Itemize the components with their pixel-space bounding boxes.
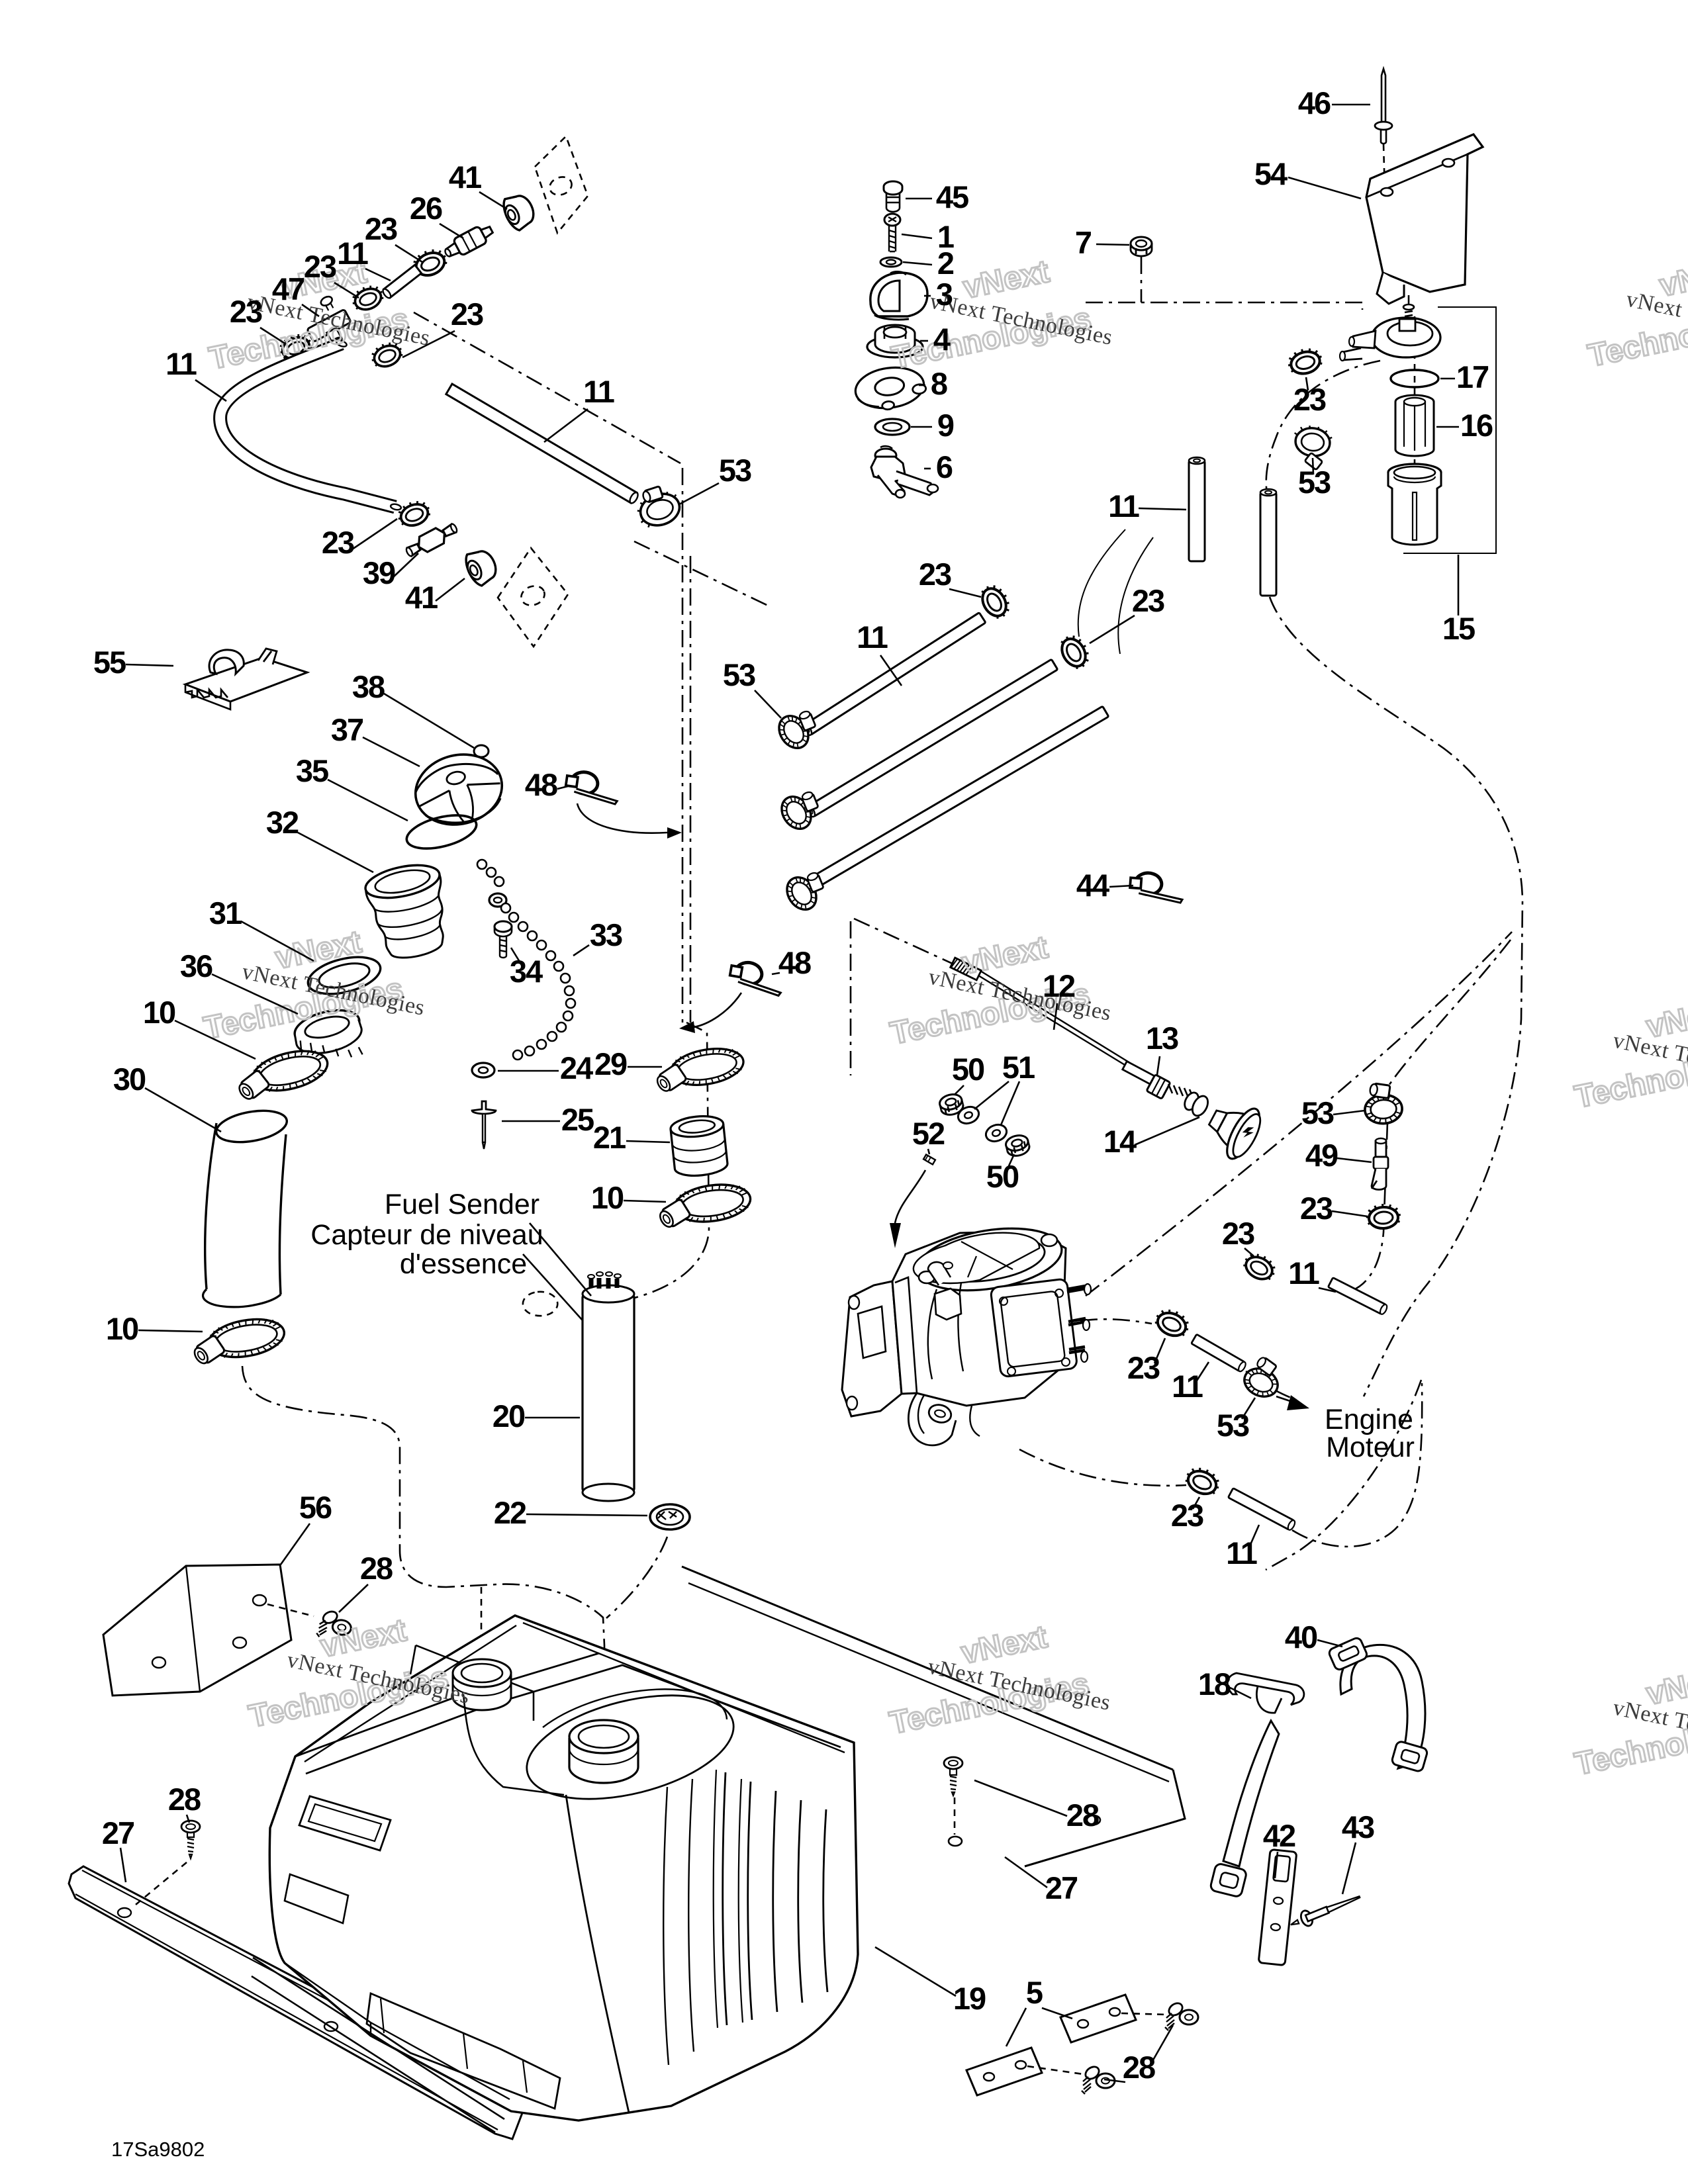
svg-text:37: 37 xyxy=(331,712,363,747)
svg-text:11: 11 xyxy=(165,346,197,381)
svg-text:53: 53 xyxy=(1298,465,1331,500)
svg-text:20: 20 xyxy=(492,1398,525,1433)
svg-text:43: 43 xyxy=(1342,1809,1374,1844)
svg-text:31: 31 xyxy=(209,895,242,931)
svg-text:9: 9 xyxy=(937,408,954,443)
svg-text:11: 11 xyxy=(1108,488,1139,523)
svg-text:Capteur de niveau: Capteur de niveau xyxy=(310,1219,543,1251)
svg-text:23: 23 xyxy=(1293,382,1326,417)
svg-text:23: 23 xyxy=(919,557,951,592)
svg-text:49: 49 xyxy=(1305,1138,1338,1173)
svg-text:40: 40 xyxy=(1285,1619,1317,1655)
svg-text:17: 17 xyxy=(1456,359,1489,394)
svg-text:3: 3 xyxy=(936,277,953,312)
svg-text:23: 23 xyxy=(1132,583,1164,618)
svg-text:23: 23 xyxy=(230,294,262,329)
svg-text:15: 15 xyxy=(1442,611,1475,646)
svg-text:11: 11 xyxy=(857,619,888,655)
svg-text:23: 23 xyxy=(451,296,483,332)
svg-text:50: 50 xyxy=(986,1159,1019,1194)
svg-text:26: 26 xyxy=(410,191,442,226)
svg-text:23: 23 xyxy=(365,211,397,246)
svg-text:46: 46 xyxy=(1298,85,1331,120)
svg-text:6: 6 xyxy=(936,449,953,484)
svg-text:53: 53 xyxy=(719,453,751,488)
svg-text:23: 23 xyxy=(304,249,336,284)
svg-text:7: 7 xyxy=(1075,225,1092,260)
svg-text:10: 10 xyxy=(106,1311,138,1346)
svg-text:53: 53 xyxy=(1217,1408,1249,1443)
svg-text:27: 27 xyxy=(102,1815,134,1850)
svg-text:10: 10 xyxy=(143,995,175,1030)
svg-text:23: 23 xyxy=(1222,1216,1254,1251)
svg-text:Engine: Engine xyxy=(1325,1404,1413,1435)
svg-text:11: 11 xyxy=(1172,1369,1203,1404)
svg-text:23: 23 xyxy=(1300,1191,1333,1226)
svg-text:16: 16 xyxy=(1460,408,1493,443)
svg-text:21: 21 xyxy=(593,1120,626,1155)
svg-text:48: 48 xyxy=(525,767,557,802)
svg-text:48: 48 xyxy=(778,945,811,980)
svg-text:34: 34 xyxy=(510,954,543,989)
svg-text:5: 5 xyxy=(1026,1975,1043,2010)
svg-text:35: 35 xyxy=(296,753,328,788)
svg-text:17Sa9802: 17Sa9802 xyxy=(111,2138,205,2161)
svg-text:29: 29 xyxy=(594,1046,627,1081)
svg-text:28: 28 xyxy=(1066,1797,1099,1833)
svg-text:8: 8 xyxy=(931,366,947,401)
svg-text:13: 13 xyxy=(1146,1021,1178,1056)
svg-text:Moteur: Moteur xyxy=(1326,1432,1415,1463)
svg-text:42: 42 xyxy=(1263,1818,1295,1853)
svg-text:28: 28 xyxy=(360,1551,393,1586)
svg-text:18: 18 xyxy=(1198,1666,1231,1702)
svg-text:11: 11 xyxy=(1288,1255,1319,1291)
svg-text:14: 14 xyxy=(1103,1124,1137,1159)
svg-text:36: 36 xyxy=(180,948,212,983)
svg-text:53: 53 xyxy=(723,657,755,692)
svg-text:32: 32 xyxy=(266,805,299,840)
svg-text:47: 47 xyxy=(272,271,305,306)
svg-text:d'essence: d'essence xyxy=(400,1248,527,1280)
svg-text:10: 10 xyxy=(591,1180,624,1215)
svg-text:11: 11 xyxy=(583,374,614,409)
svg-text:23: 23 xyxy=(1171,1498,1203,1533)
svg-text:50: 50 xyxy=(952,1052,984,1087)
svg-text:28: 28 xyxy=(168,1782,201,1817)
svg-text:54: 54 xyxy=(1254,156,1288,191)
svg-text:Fuel Sender: Fuel Sender xyxy=(385,1189,539,1220)
svg-text:30: 30 xyxy=(113,1062,146,1097)
svg-text:22: 22 xyxy=(494,1495,526,1530)
svg-text:19: 19 xyxy=(953,1981,986,2016)
svg-text:2: 2 xyxy=(937,246,954,281)
svg-text:52: 52 xyxy=(912,1116,945,1151)
svg-text:12: 12 xyxy=(1043,968,1075,1003)
svg-text:44: 44 xyxy=(1076,868,1109,903)
svg-text:25: 25 xyxy=(561,1102,594,1137)
svg-text:53: 53 xyxy=(1301,1095,1334,1130)
svg-text:39: 39 xyxy=(363,555,395,590)
svg-text:23: 23 xyxy=(1127,1350,1160,1385)
svg-text:41: 41 xyxy=(405,580,438,615)
svg-text:27: 27 xyxy=(1045,1870,1078,1905)
svg-text:38: 38 xyxy=(352,669,385,704)
svg-text:45: 45 xyxy=(936,179,968,214)
svg-text:28: 28 xyxy=(1123,2050,1155,2085)
svg-text:23: 23 xyxy=(322,525,354,560)
svg-text:33: 33 xyxy=(590,917,622,952)
svg-text:24: 24 xyxy=(560,1050,593,1085)
svg-text:41: 41 xyxy=(449,159,481,195)
svg-text:51: 51 xyxy=(1002,1050,1035,1085)
svg-text:56: 56 xyxy=(299,1490,332,1525)
svg-text:11: 11 xyxy=(337,236,368,271)
svg-text:55: 55 xyxy=(93,645,126,680)
svg-text:4: 4 xyxy=(933,322,951,357)
